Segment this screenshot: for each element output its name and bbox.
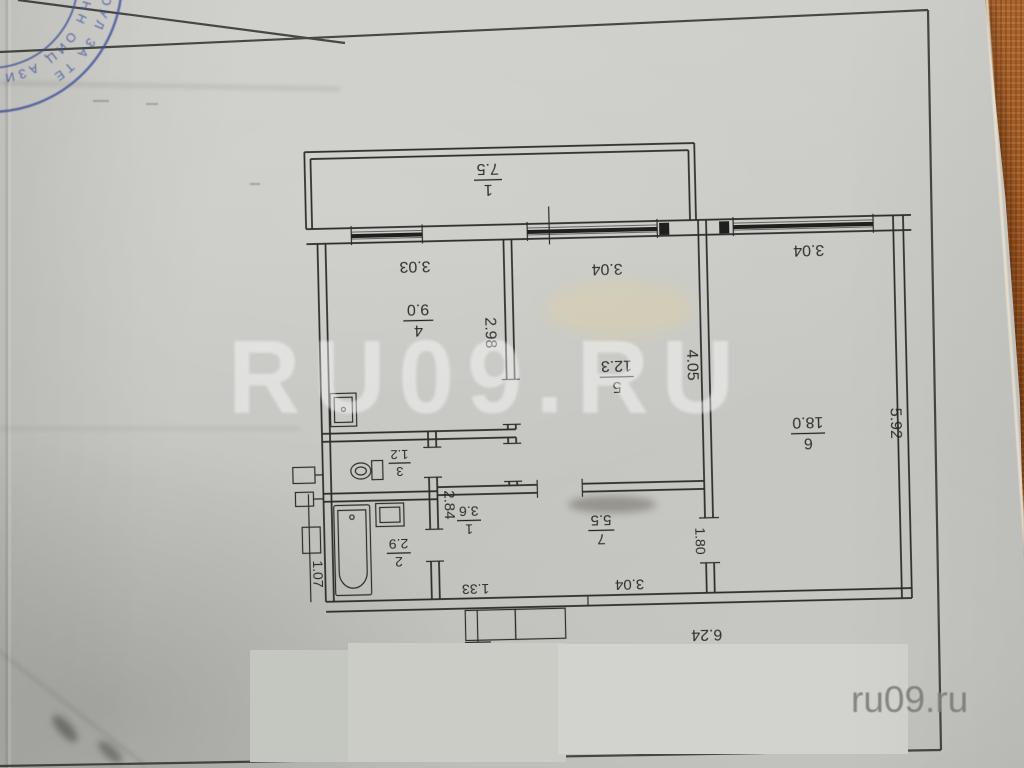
dim-room6-height: 5.92 (886, 408, 904, 440)
room6-number: 6 (804, 434, 813, 451)
kitchen-area: 9.0 (407, 300, 430, 318)
watermark-center: RU09.RU (228, 318, 747, 438)
dim-room5-width: 3.04 (591, 260, 623, 278)
label-room6: 6 18.0 (791, 413, 826, 452)
dim-left: 1.07 (310, 560, 327, 588)
label-room7: 7 5.5 (588, 511, 615, 548)
wall-post (659, 223, 669, 235)
label-wc: 3 1.2 (388, 447, 411, 480)
label-hall: 1 3.6 (457, 503, 482, 538)
bathtub-icon (334, 505, 372, 596)
balcony-area: 7.5 (476, 160, 499, 178)
dim-door-room7: 1.80 (692, 527, 709, 555)
wc-number: 3 (396, 464, 404, 479)
label-balcony: 1 7.5 (474, 160, 503, 199)
wall-post (719, 221, 729, 233)
dim-entry: 1.33 (462, 581, 490, 598)
toilet-icon (351, 460, 383, 480)
sink-icon (376, 503, 405, 527)
label-bath: 2 2.9 (386, 536, 411, 571)
dim-hall-height: 2.84 (440, 490, 458, 520)
watermark-corner: ru09.ru (851, 679, 968, 721)
photo-of-floorplan-document: ОУЛ ЗА ТЕ ОНН ОИЦ АЗИ НАГ РО (0, 0, 1024, 768)
dim-kitchen-width: 3.03 (399, 257, 431, 275)
room7-area: 5.5 (590, 511, 611, 528)
window-room5 (527, 227, 657, 234)
balcony-number: 1 (483, 181, 492, 198)
bath-number: 2 (395, 554, 403, 570)
hall-area: 3.6 (459, 503, 479, 519)
dim-room7-width: 3.04 (615, 575, 645, 593)
frame-line-bottom (0, 750, 941, 766)
wc-area: 1.2 (390, 447, 408, 462)
entry-door-mark (464, 608, 566, 642)
blue-round-stamp: ОУЛ ЗА ТЕ ОНН ОИЦ АЗИ НАГ РО (0, 0, 145, 135)
exterior-shaft-boxes (293, 467, 321, 554)
dim-bottom: 6.24 (691, 625, 723, 643)
hall-number: 1 (465, 521, 473, 537)
window-kitchen (351, 232, 422, 238)
dim-room6-width: 3.04 (793, 241, 825, 259)
bath-area: 2.9 (388, 536, 408, 552)
room6-area: 18.0 (792, 413, 824, 431)
room7-number: 7 (597, 530, 606, 547)
